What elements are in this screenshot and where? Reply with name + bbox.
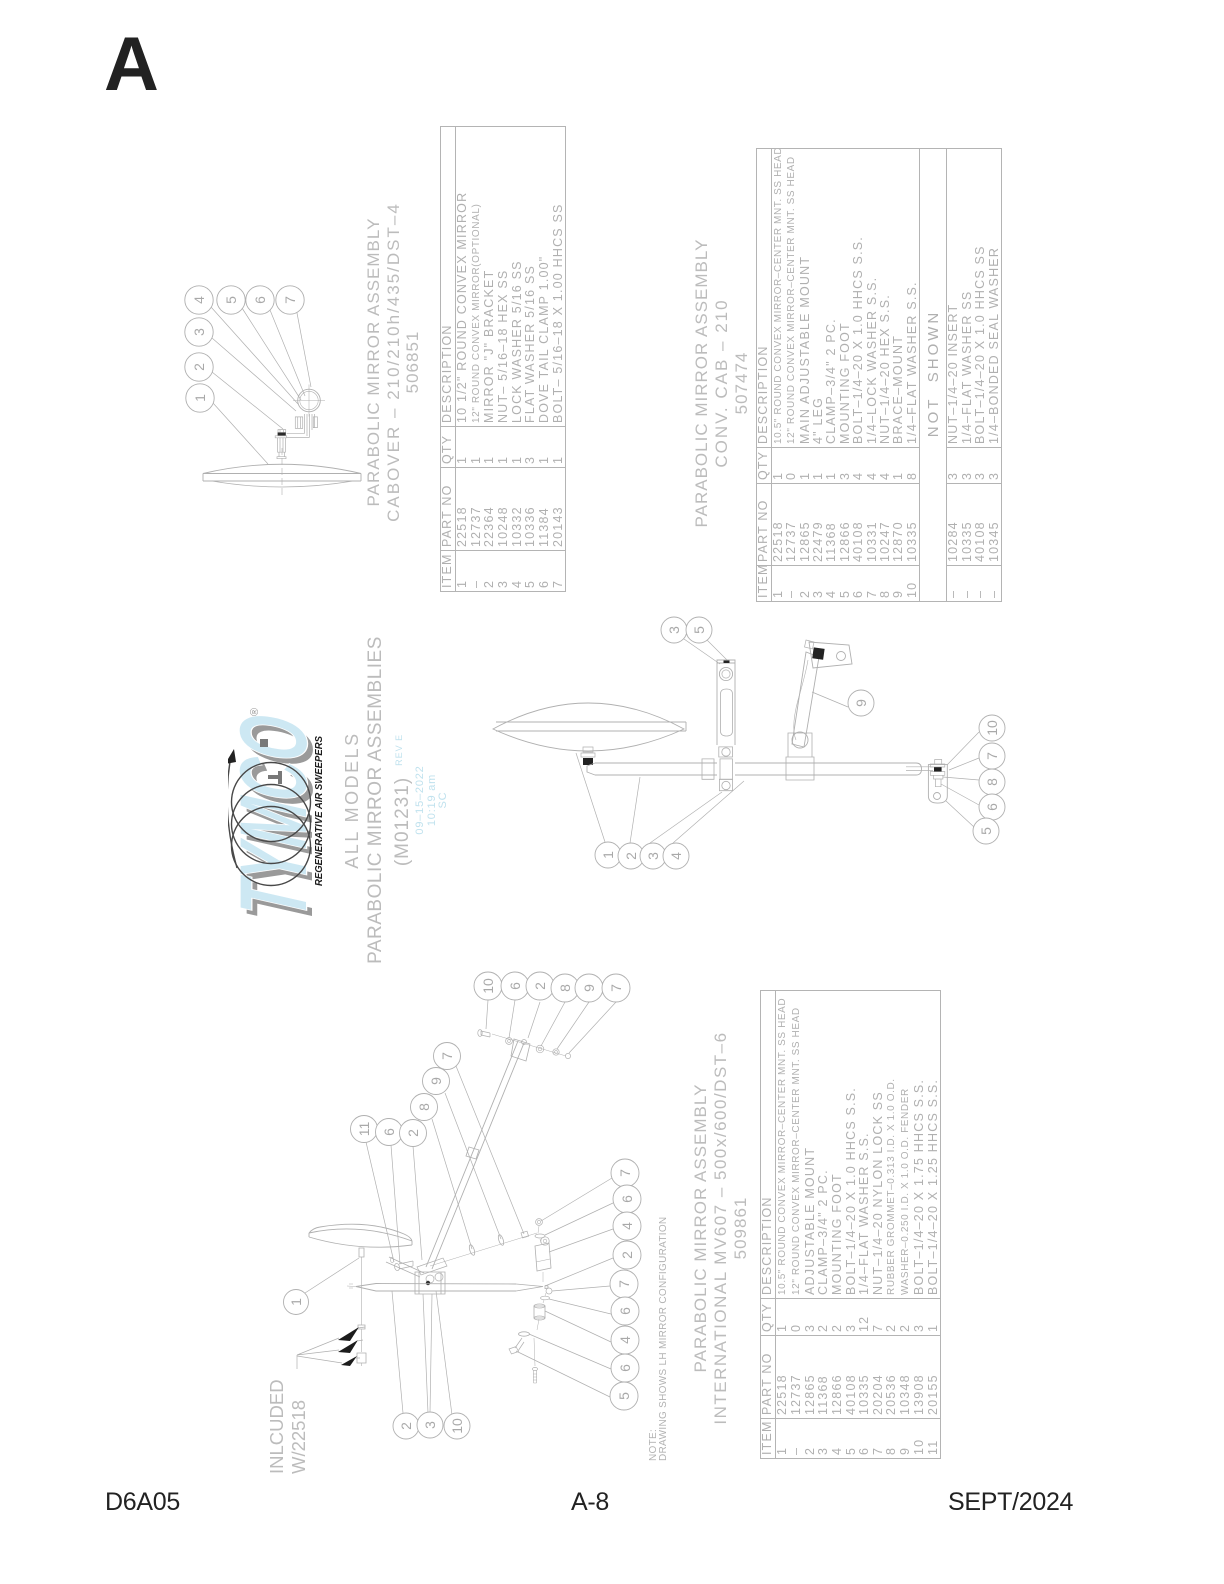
- svg-text:6: 6: [619, 1195, 635, 1203]
- svg-text:8: 8: [416, 1103, 432, 1111]
- svg-text:6: 6: [507, 982, 523, 990]
- svg-text:2: 2: [398, 1422, 414, 1430]
- svg-text:2: 2: [405, 1129, 421, 1137]
- svg-text:7: 7: [608, 984, 624, 992]
- svg-text:7: 7: [282, 296, 298, 304]
- svg-text:9: 9: [581, 984, 597, 992]
- svg-text:5: 5: [616, 1392, 632, 1400]
- svg-text:6: 6: [984, 803, 1000, 811]
- svg-text:11: 11: [356, 1122, 372, 1137]
- svg-text:5: 5: [691, 626, 707, 634]
- svg-text:3: 3: [666, 626, 682, 634]
- svg-text:10: 10: [984, 720, 1000, 736]
- svg-text:5: 5: [978, 827, 994, 835]
- svg-text:2: 2: [532, 982, 548, 990]
- svg-text:6: 6: [381, 1128, 397, 1136]
- svg-text:3: 3: [191, 328, 207, 336]
- svg-text:7: 7: [984, 752, 1000, 760]
- svg-text:10: 10: [480, 978, 496, 994]
- svg-text:2: 2: [623, 852, 639, 860]
- svg-text:7: 7: [439, 1052, 455, 1060]
- svg-text:6: 6: [617, 1307, 633, 1315]
- svg-text:4: 4: [668, 852, 684, 860]
- svg-text:2: 2: [619, 1251, 635, 1259]
- svg-text:7: 7: [616, 1280, 632, 1288]
- svg-text:9: 9: [853, 699, 869, 707]
- svg-text:6: 6: [617, 1364, 633, 1372]
- svg-text:4: 4: [617, 1336, 633, 1344]
- svg-text:7: 7: [617, 1169, 633, 1177]
- svg-text:8: 8: [984, 778, 1000, 786]
- svg-text:1: 1: [192, 394, 208, 402]
- svg-text:5: 5: [223, 296, 239, 304]
- svg-text:8: 8: [557, 984, 573, 992]
- svg-text:1: 1: [288, 1298, 304, 1306]
- svg-text:4: 4: [191, 296, 207, 304]
- svg-text:3: 3: [422, 1421, 438, 1429]
- svg-text:1: 1: [600, 851, 616, 859]
- svg-text:10: 10: [449, 1418, 465, 1434]
- svg-text:4: 4: [619, 1222, 635, 1230]
- svg-text:9: 9: [428, 1077, 444, 1085]
- svg-text:2: 2: [191, 363, 207, 371]
- svg-text:6: 6: [252, 296, 268, 304]
- svg-text:3: 3: [645, 852, 661, 860]
